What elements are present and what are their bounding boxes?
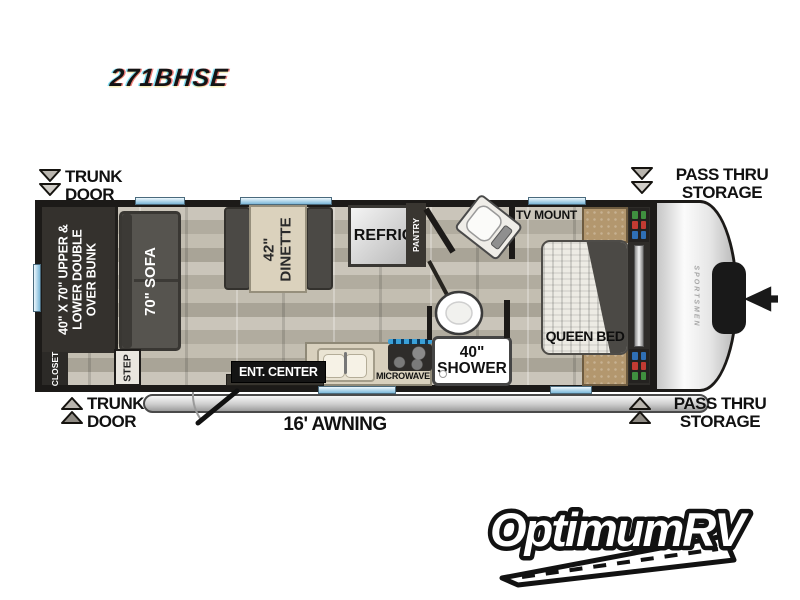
trunk-door-callout-top: TRUNK DOOR (38, 168, 122, 204)
cargo-item (641, 352, 647, 360)
awning-bar (143, 394, 709, 413)
dinette-bench-left (224, 207, 251, 290)
step-label: STEP (122, 354, 134, 381)
pass-thru-callout-top: PASS THRU STORAGE (630, 166, 787, 202)
trunk-door-callout-bottom: TRUNK DOOR (60, 395, 144, 431)
cargo-item (632, 372, 638, 380)
bunk-label-line: 40" X 70" UPPER & (58, 225, 72, 336)
cargo-item (632, 221, 638, 229)
trunk-door-label-bottom: TRUNK DOOR (87, 395, 144, 431)
bunk-label: 40" X 70" UPPER & LOWER DOUBLE OVER BUNK (58, 225, 99, 336)
tv-mount-label: TV MOUNT (516, 208, 577, 222)
model-number: 271BHSE (109, 64, 230, 93)
propane-cover (712, 262, 746, 334)
storage-divider-panel (634, 245, 644, 347)
microwave-label: MICROWAVE (364, 371, 430, 381)
hitch-coupler (744, 284, 778, 314)
window-bottom-bedroom (550, 386, 592, 394)
dinette-bench-right (306, 207, 333, 290)
dinette-label-line: DINETTE (278, 217, 295, 281)
bunk-area: 40" X 70" UPPER & LOWER DOUBLE OVER BUNK (42, 207, 118, 353)
callout-line: DOOR (87, 413, 144, 431)
pantry-label: PANTRY (411, 218, 421, 252)
cargo-item (632, 362, 638, 370)
callout-line: TRUNK (87, 395, 144, 413)
pass-thru-callout-bottom: PASS THRU STORAGE (628, 395, 785, 431)
awning-label: 16' AWNING (235, 414, 435, 436)
dinette-label-line: 42" (262, 217, 279, 281)
double-arrow-down-icon (38, 168, 62, 198)
cargo-item (641, 221, 647, 229)
brand-cap-label: SPORTSMEN (693, 265, 700, 327)
nightstand-bottom (582, 350, 628, 386)
window-top-bedroom (528, 197, 586, 205)
window-rear (33, 264, 41, 312)
cargo-item (632, 352, 638, 360)
cargo-item (641, 211, 647, 219)
storage-items-bottom (629, 349, 649, 383)
trunk-door-label-top: TRUNK DOOR (65, 168, 122, 204)
storage-items-top (629, 208, 649, 242)
entry-step: STEP (114, 349, 141, 386)
sofa-label-wrap: 70" SOFA (119, 211, 181, 351)
double-arrow-up-icon (628, 395, 652, 425)
double-arrow-down-icon (630, 166, 654, 196)
window-top-dinette (240, 197, 332, 205)
cargo-item (641, 231, 647, 239)
pass-thru-label-bottom: PASS THRU STORAGE (655, 395, 785, 431)
closet: CLOSET (42, 352, 68, 385)
stove (388, 344, 432, 371)
dinette-label: 42" DINETTE (262, 217, 295, 281)
pantry: PANTRY (406, 203, 426, 267)
kitchen-faucet (344, 352, 347, 374)
shower: 40" SHOWER (432, 336, 512, 386)
queen-bed-label: QUEEN BED (540, 328, 630, 344)
entertainment-center-label: ENT. CENTER (231, 361, 326, 383)
logo-text: OptimumRV (490, 503, 749, 556)
shower-label-line: SHOWER (437, 361, 507, 377)
sofa-label: 70" SOFA (142, 247, 159, 316)
callout-line: STORAGE (655, 413, 785, 431)
cargo-item (641, 362, 647, 370)
double-arrow-up-icon (60, 395, 84, 425)
shower-label-line: 40" (460, 345, 485, 361)
cargo-item (632, 231, 638, 239)
callout-line: PASS THRU (657, 166, 787, 184)
cargo-item (632, 211, 638, 219)
nightstand-top (582, 207, 628, 243)
window-bottom-kitchen (318, 386, 396, 394)
dinette-table: 42" DINETTE (249, 205, 307, 293)
callout-line: PASS THRU (655, 395, 785, 413)
cargo-item (641, 372, 647, 380)
pass-thru-label-top: PASS THRU STORAGE (657, 166, 787, 202)
optimumrv-logo: OptimumRV (486, 490, 796, 590)
shower-drain (439, 370, 447, 378)
floorplan-stage: 271BHSE TRUNK DOOR PASS THRU STORAGE SPO… (0, 0, 800, 600)
closet-label: CLOSET (50, 351, 60, 385)
bunk-label-line: OVER BUNK (85, 225, 99, 336)
bunk-label-line: LOWER DOUBLE (72, 225, 86, 336)
window-top-sofa (135, 197, 185, 205)
callout-line: TRUNK (65, 168, 122, 186)
